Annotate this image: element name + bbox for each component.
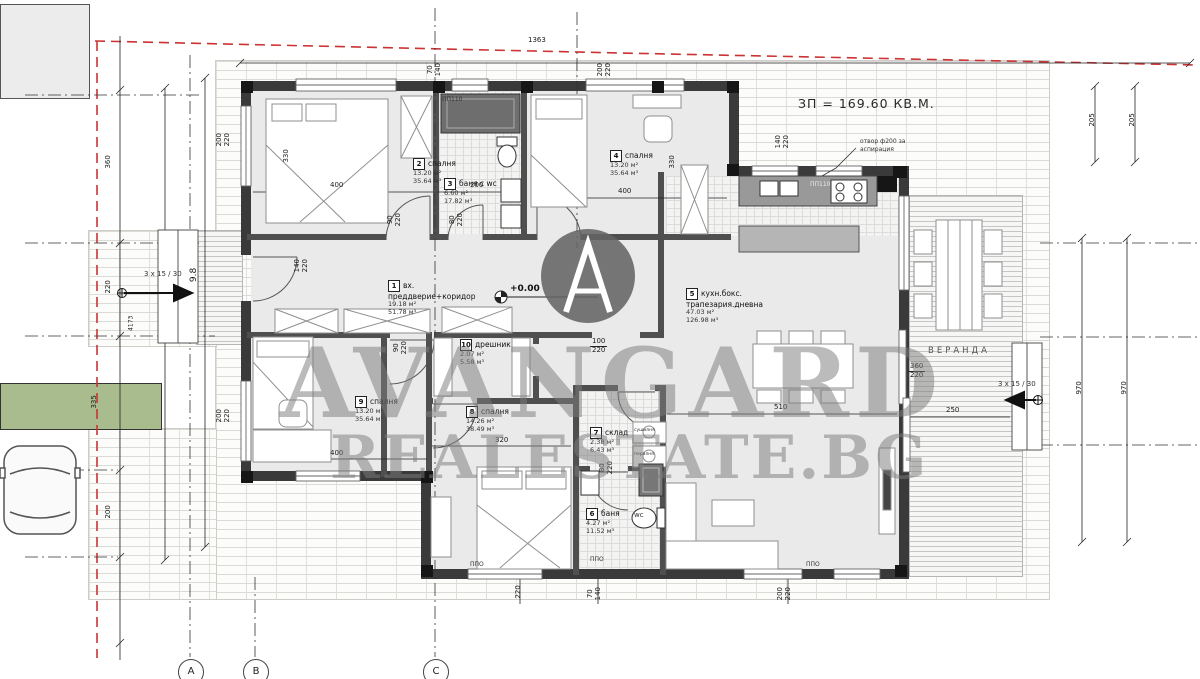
pp110-label-bath: ПП110 bbox=[442, 96, 462, 103]
dim-bed2-height: 330 bbox=[283, 149, 291, 162]
dim-veranda-width: 250 bbox=[946, 407, 959, 415]
dim-left-220: 220 bbox=[105, 280, 113, 293]
room-label-5: 5кухн.бокс. трапезария.дневна 47.03 м² 1… bbox=[686, 288, 763, 325]
dim-bed9-door: 90220 bbox=[393, 341, 408, 354]
pp110-label-kitchen: ПП110 bbox=[810, 181, 830, 188]
dim-left-335: 335 bbox=[91, 395, 99, 408]
grid-bubble-c: C bbox=[423, 659, 449, 679]
ppo-label-3: ППО bbox=[806, 561, 820, 568]
room-label-4: 4спалня 13.20 м² 35.64 м³ bbox=[610, 150, 653, 178]
vent-note-line1: отвор ф200 за bbox=[860, 138, 905, 145]
floor-plan-canvas: ЗП = 169.60 КВ.М. 1вх. преддверие+коридо… bbox=[0, 0, 1200, 679]
dim-bed2-width: 400 bbox=[330, 182, 343, 190]
dim-terrace-98: 9.8 bbox=[190, 268, 200, 282]
dim-bath6-door: 80220 bbox=[599, 461, 614, 474]
level-label: +0.00 bbox=[510, 284, 540, 294]
room-label-7: 7склад 2.38 м² 6.43 м³ bbox=[590, 427, 628, 455]
room-label-1: 1вх. преддверие+коридор 19.18 м² 51.78 м… bbox=[388, 280, 476, 317]
dim-right-970b: 970 bbox=[1121, 381, 1129, 394]
dim-window-bath: 70140 bbox=[427, 63, 442, 76]
dim-bed8-width: 320 bbox=[495, 437, 508, 445]
room-label-8: 8спалня 14.26 м² 38.49 м³ bbox=[466, 406, 509, 434]
dim-right-205b: 205 bbox=[1129, 113, 1137, 126]
dim-veranda-door: 360220 bbox=[908, 363, 925, 379]
dim-entry-door: 140220 bbox=[294, 259, 309, 272]
built-area-text: ЗП = 169.60 КВ.М. bbox=[798, 96, 935, 111]
dim-living-opening: 100220 bbox=[590, 338, 607, 354]
dim-window-kitchen: 140220 bbox=[775, 135, 790, 148]
dim-right-205a: 205 bbox=[1089, 113, 1097, 126]
grid-bubble-a: A bbox=[178, 659, 204, 679]
dim-bed9-width: 400 bbox=[330, 450, 343, 458]
room-label-10: 10дрешник 2.07 м² 5.58 м³ bbox=[460, 339, 511, 367]
ppo-label-2: ППО bbox=[590, 556, 604, 563]
dim-bottom-3: 200220 bbox=[777, 587, 792, 600]
dim-hall-door-1: 90220 bbox=[387, 213, 402, 226]
dim-left-200: 200 bbox=[105, 505, 113, 518]
veranda-label: ВЕРАНДА bbox=[928, 346, 990, 356]
grid-bubble-b: B bbox=[243, 659, 269, 679]
room-label-9: 9спалня 13.20 м² 35.64 м³ bbox=[355, 396, 398, 424]
dim-bed4-height: 330 bbox=[669, 155, 677, 168]
dryer-label: сушилня bbox=[634, 428, 655, 433]
dim-bath3-width: 200 bbox=[470, 182, 483, 190]
vent-note-line2: аспирация bbox=[860, 146, 894, 153]
stairs-left-label: 3 x 15 / 30 bbox=[144, 270, 182, 278]
dim-living-width: 510 bbox=[774, 404, 787, 412]
ppo-label-1: ППО bbox=[470, 561, 484, 568]
dim-bed4-width: 400 bbox=[618, 188, 631, 196]
dim-left-360: 360 bbox=[105, 155, 113, 168]
dim-top-total: 1363 bbox=[528, 37, 546, 45]
washer-label: пералня bbox=[634, 452, 654, 457]
room-label-6: 6баня 4.27 м² 11.52 м³ bbox=[586, 508, 620, 536]
stairs-right-label: 3 x 15 / 30 bbox=[998, 380, 1036, 388]
dim-window-bed4: 200220 bbox=[597, 63, 612, 76]
dim-window-left-bottom: 200220 bbox=[216, 409, 231, 422]
dim-left-4173: 4173 bbox=[128, 316, 135, 331]
dim-bottom-1: 220 bbox=[515, 585, 523, 598]
dim-bottom-2: 70140 bbox=[587, 587, 602, 600]
dim-right-970a: 970 bbox=[1076, 381, 1084, 394]
dim-hall-door-2: 80220 bbox=[449, 213, 464, 226]
wc-label: wc bbox=[634, 511, 644, 519]
dim-window-left-top: 200220 bbox=[216, 133, 231, 146]
